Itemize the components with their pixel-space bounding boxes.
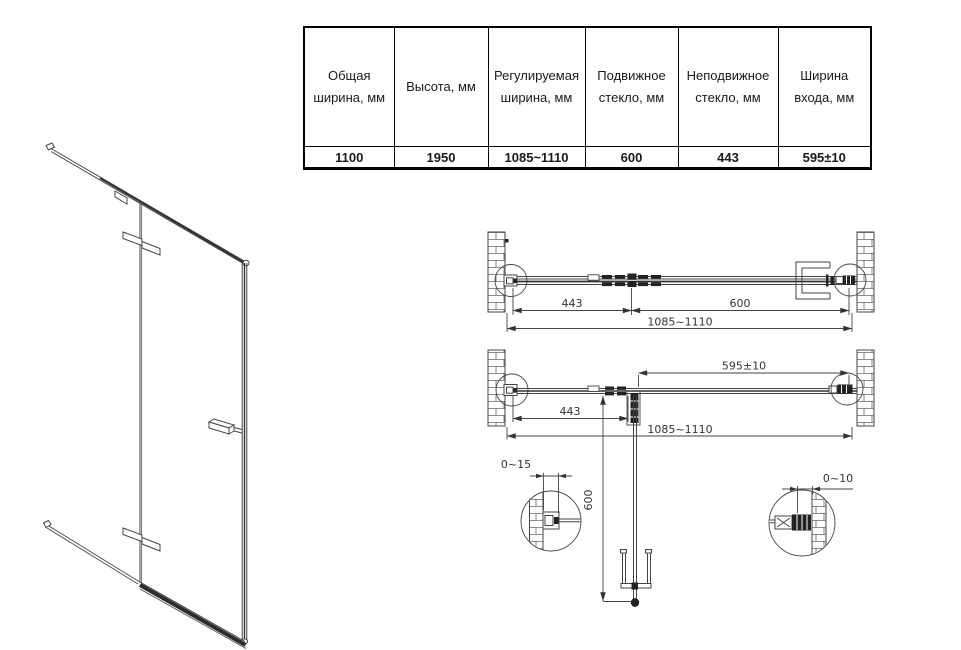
value-moving-glass: 600 [585, 147, 678, 169]
hinge-hardware-open [588, 386, 640, 425]
hinge-hardware [588, 274, 661, 288]
glass-assembly [505, 277, 857, 285]
wall-anchor-mark [505, 239, 509, 243]
value-entry-width: 595±10 [778, 147, 871, 169]
top-view-open-diagram: 595±10 443 1085~1110 600 [480, 345, 890, 650]
bottom-rail [139, 582, 246, 649]
spec-table: Общая ширина, мм Высота, мм Регулируемая… [303, 26, 872, 170]
hinge-edge [140, 200, 142, 583]
shower-door-spec-sheet: Общая ширина, мм Высота, мм Регулируемая… [0, 0, 961, 650]
col-header-height: Высота, мм [394, 27, 488, 147]
dim-right-adjust: 0~10 [823, 472, 853, 485]
col-header-total-width: Общая ширина, мм [304, 27, 394, 147]
spec-table-header-row: Общая ширина, мм Высота, мм Регулируемая… [304, 27, 871, 147]
value-adjustable-width: 1085~1110 [488, 147, 585, 169]
dim-door-depth: 600 [582, 490, 595, 511]
door-isometric-drawing [30, 135, 260, 650]
value-height: 1950 [394, 147, 488, 169]
dim-fixed-glass-open: 443 [560, 405, 581, 418]
spec-table-value-row: 1100 1950 1085~1110 600 443 595±10 [304, 147, 871, 169]
dim-entry-width: 595±10 [722, 360, 766, 373]
col-header-moving-glass: Подвижное стекло, мм [585, 27, 678, 147]
value-fixed-glass: 443 [678, 147, 778, 169]
col-header-fixed-glass: Неподвижное стекло, мм [678, 27, 778, 147]
support-bar-open [505, 389, 857, 394]
dim-total-width-open: 1085~1110 [647, 423, 712, 436]
wall-profile-edge [242, 263, 248, 644]
right-wall [857, 232, 874, 312]
col-header-entry-width: Ширина входа, мм [778, 27, 871, 147]
dim-fixed-glass-closed: 443 [562, 297, 583, 310]
detail-right-profile-adjust: 0~10 [769, 472, 853, 556]
value-total-width: 1100 [304, 147, 394, 169]
dim-door-glass-closed: 600 [730, 297, 751, 310]
right-wall-open [857, 350, 874, 426]
dim-total-width-closed: 1085~1110 [647, 316, 712, 329]
door-handle [209, 419, 242, 434]
left-wall [488, 232, 505, 312]
top-view-closed-diagram: 443 600 1085~1110 [480, 225, 890, 340]
detail-left-profile-adjust: 0~15 [501, 458, 581, 553]
handle-plan-view [796, 262, 835, 299]
col-header-adjustable-width: Регулируемая ширина, мм [488, 27, 585, 147]
dim-left-adjust: 0~15 [501, 458, 531, 471]
